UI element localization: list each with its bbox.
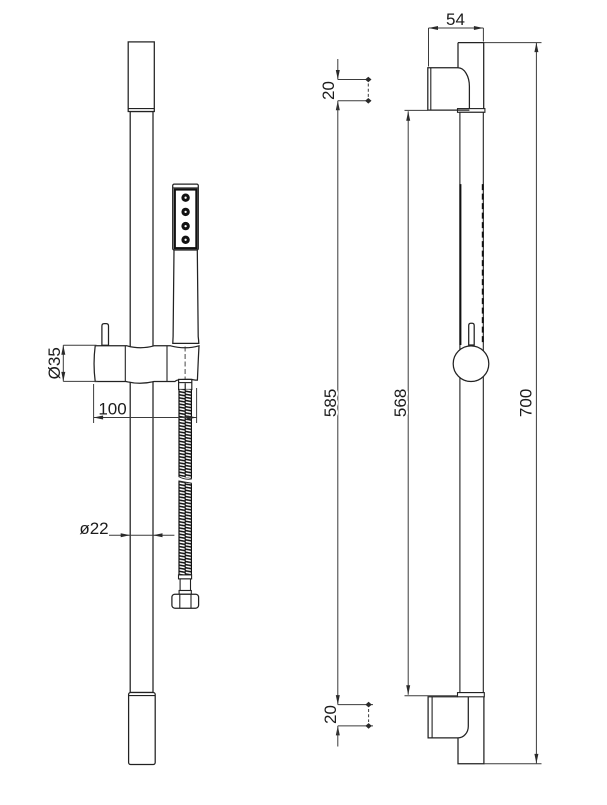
svg-text:ø22: ø22 <box>79 519 108 538</box>
svg-text:20: 20 <box>321 705 340 724</box>
svg-text:Ø35: Ø35 <box>45 347 64 379</box>
svg-text:700: 700 <box>517 389 536 417</box>
svg-text:100: 100 <box>98 400 126 419</box>
svg-text:54: 54 <box>446 10 465 29</box>
svg-text:568: 568 <box>391 389 410 417</box>
svg-text:585: 585 <box>321 389 340 417</box>
svg-text:20: 20 <box>319 81 338 100</box>
